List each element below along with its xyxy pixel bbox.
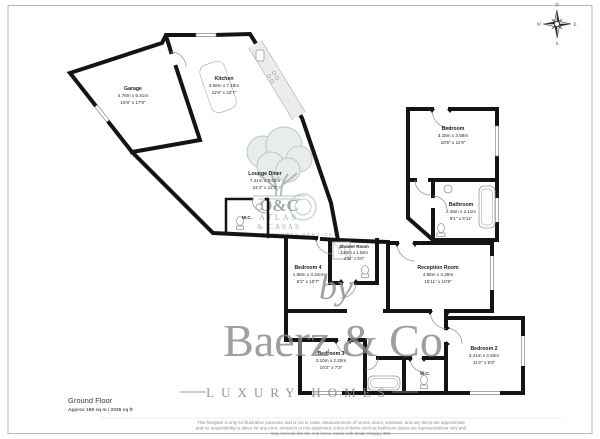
floorplan-page: O&C ATLAS & CASAS PROPERTY SERVICES [0, 0, 600, 439]
compass-icon: N E S W [537, 4, 577, 48]
hall-wc-sink [256, 204, 262, 210]
lounge-name: Lounge Diner [248, 171, 281, 177]
watermark-by: by [319, 267, 353, 307]
bedroom4-name: Bedroom 4 [294, 265, 321, 271]
watermark-atlas: ATLAS [259, 213, 299, 222]
floor-area: Approx 189 sq m / 2036 sq ft [68, 407, 133, 413]
garage-imperial: 15'8" x 17'9" [120, 100, 146, 105]
footer: Ground Floor Approx 189 sq m / 2036 sq f… [68, 396, 562, 436]
shower-imperial: 4'11" x 5'0" [344, 256, 365, 261]
compass-e: E [573, 23, 576, 28]
bedroom-name: Bedroom [442, 126, 465, 132]
bathroom-metric: 2.46m x 2.11m [446, 209, 476, 214]
kitchen-imperial: 11'8" x 23'7" [212, 90, 237, 95]
bathroom-sink [444, 185, 452, 193]
bathroom-name: Bathroom [449, 202, 474, 208]
bathroom-imperial: 8'1" x 6'11" [450, 216, 473, 221]
shower-metric: 1.50m x 1.53m [340, 250, 368, 255]
lounge-imperial: 24'4" x 11'3" [253, 185, 278, 190]
watermark-casas: & CASAS [257, 223, 301, 231]
compass-n: N [555, 4, 559, 9]
compass-w: W [537, 23, 542, 28]
shower-name: Shower Room [339, 244, 369, 249]
compass-s: S [556, 42, 559, 47]
disclaimer-line2: and no responsibility is taken for any e… [196, 426, 467, 431]
disclaimer-line3: may not look like the real items. Made w… [271, 431, 392, 436]
kitchen-metric: 3.56m x 7.18m [209, 83, 240, 88]
floor-plan-canvas: O&C ATLAS & CASAS PROPERTY SERVICES [0, 0, 600, 439]
bedroom2-name: Bedroom 2 [470, 346, 497, 352]
bedroom4-imperial: 6'2" x 10'7" [297, 279, 320, 284]
kitchen-name: Kitchen [214, 76, 233, 82]
watermark-brand: Baerz & Co [223, 315, 443, 366]
shower-room-toilet [362, 266, 369, 275]
wc-south-label: W.C. [420, 371, 430, 376]
reception-imperial: 15'11" x 10'9" [424, 279, 452, 284]
reception-walls [388, 243, 492, 311]
kitchen-sink [256, 50, 264, 61]
lounge-metric: 7.41m x 3.42m [250, 178, 281, 183]
bedroom2-metric: 3.41m x 2.83m [469, 353, 500, 358]
bathroom-toilet [438, 224, 445, 233]
reception-name: Reception Room [417, 265, 459, 271]
bedroom2-imperial: 11'2" x 9'3" [473, 360, 496, 365]
bedroom-metric: 3.18m x 3.58m [438, 133, 469, 138]
disclaimer-line1: This floorplan is only for illustrative … [197, 420, 466, 425]
watermark-tagline: LUXURY HOMES [206, 385, 392, 400]
garage-metric: 4.78m x 5.41m [118, 93, 149, 98]
garage-name: Garage [124, 86, 142, 92]
bedroom-imperial: 10'5" x 11'9" [441, 140, 466, 145]
south-wc-toilet [421, 376, 428, 385]
floor-title: Ground Floor [68, 396, 113, 405]
reception-metric: 4.86m x 3.28m [423, 272, 454, 277]
wc-hall-label: W.C. [242, 215, 252, 220]
